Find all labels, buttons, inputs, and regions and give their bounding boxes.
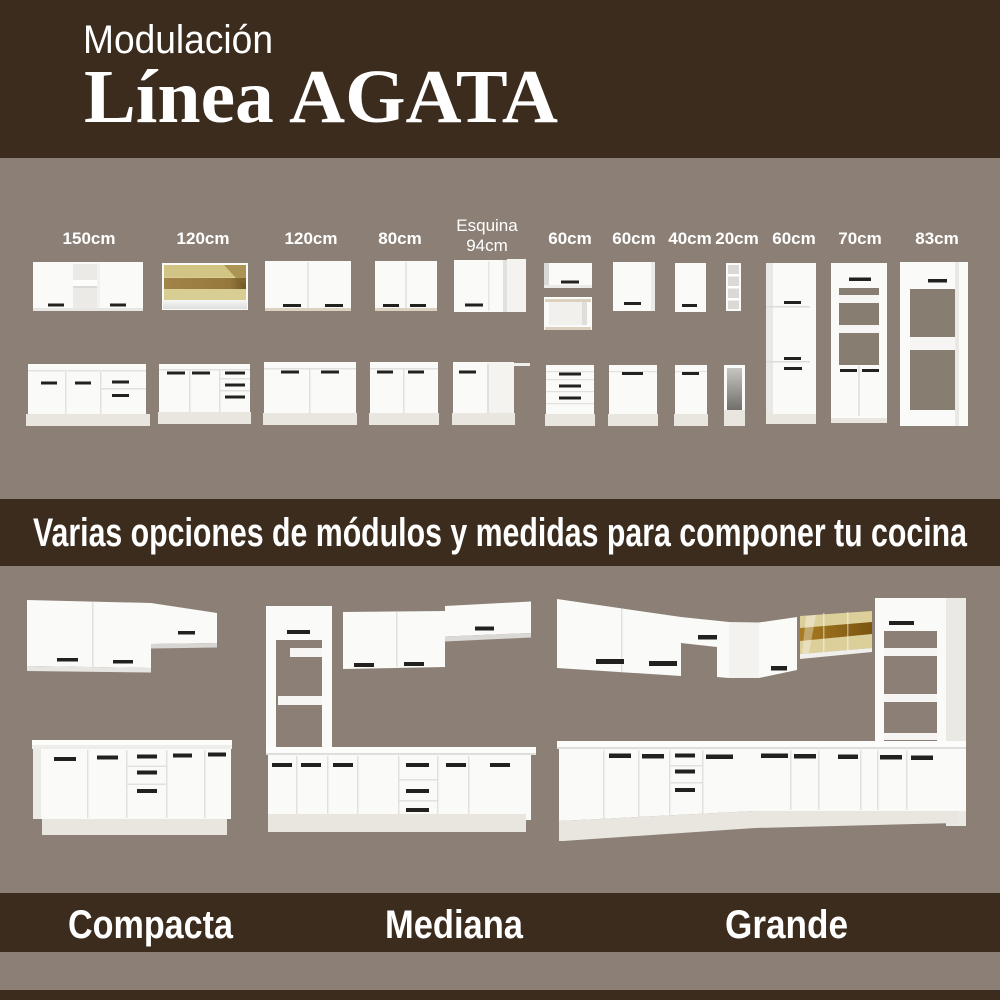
svg-text:60cm: 60cm <box>548 229 591 248</box>
svg-text:Varias opciones de módulos y m: Varias opciones de módulos y medidas par… <box>33 511 968 555</box>
svg-text:60cm: 60cm <box>772 229 815 248</box>
svg-text:Grande: Grande <box>725 903 848 947</box>
svg-text:120cm: 120cm <box>285 229 338 248</box>
svg-text:120cm: 120cm <box>177 229 230 248</box>
svg-text:80cm: 80cm <box>378 229 421 248</box>
svg-text:60cm: 60cm <box>612 229 655 248</box>
svg-text:Mediana: Mediana <box>385 903 524 947</box>
svg-text:Esquina: Esquina <box>456 216 518 235</box>
svg-text:150cm: 150cm <box>63 229 116 248</box>
svg-text:Línea AGATA: Línea AGATA <box>84 55 558 139</box>
svg-text:20cm: 20cm <box>715 229 758 248</box>
svg-text:40cm: 40cm <box>668 229 711 248</box>
svg-text:94cm: 94cm <box>466 236 508 255</box>
svg-text:Compacta: Compacta <box>68 903 234 947</box>
svg-text:83cm: 83cm <box>915 229 958 248</box>
svg-text:70cm: 70cm <box>838 229 881 248</box>
